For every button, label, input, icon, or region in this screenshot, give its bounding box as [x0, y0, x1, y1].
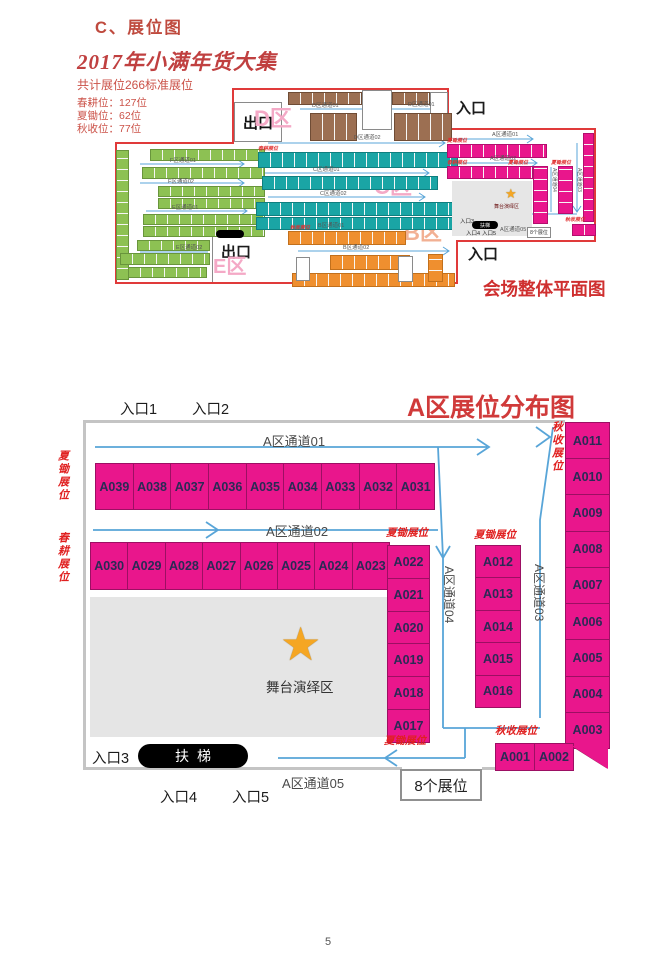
escalator-pill-e-zone [216, 230, 244, 238]
entrance4-label: 入口4 [160, 786, 197, 807]
booth-A023: A023 [352, 543, 389, 589]
booth-A015: A015 [476, 642, 520, 674]
hall-outline [447, 128, 596, 130]
channel-label-d2: D区通道02 [354, 136, 381, 142]
booth-A022: A022 [388, 546, 429, 578]
elevator-box [362, 90, 392, 130]
booth-A011: A011 [566, 423, 609, 458]
booth-A030: A030 [91, 543, 127, 589]
booth-A033: A033 [321, 464, 359, 509]
booth-A006: A006 [566, 603, 609, 639]
stat-autumn: 秋收位：77位 [77, 121, 141, 136]
booth-strip-pink [572, 224, 596, 236]
bottom-wall [84, 767, 402, 770]
mini-season-label: 夏锄展位 [551, 161, 571, 166]
hall-outline [232, 88, 449, 90]
season-label-summer-bottom: 夏锄展位 [384, 736, 426, 747]
booth-A008: A008 [566, 531, 609, 567]
mini-entrance3-label: 入口3 [460, 220, 474, 226]
booth-strip-teal [256, 217, 458, 230]
entrance-bottom-label: 入口 [468, 243, 498, 264]
booth-A039: A039 [96, 464, 133, 509]
booth-strip-pink [533, 166, 548, 224]
booth-row-top: A039A038A037A036A035A034A033A032A031 [95, 463, 435, 510]
channel03-label: A区通道03 [531, 564, 548, 621]
booth-A035: A035 [246, 464, 284, 509]
channel-label-mini-a3: A区通道03 [576, 168, 581, 192]
channel-label-mini-a1: A区通道01 [492, 133, 518, 139]
zone-a-map-title: A区展位分布图 [407, 388, 575, 424]
star-icon: ★ [280, 621, 321, 667]
booth-strip-pink [447, 166, 533, 179]
booth-strip-green [142, 167, 265, 179]
booth-row-second: A030A029A028A027A026A025A024A023 [90, 542, 390, 590]
top-wall [84, 420, 565, 423]
eight-booths-label: 8个展位 [414, 775, 467, 796]
booth-A037: A037 [170, 464, 208, 509]
stage-area [90, 597, 387, 737]
booth-strip-teal [262, 176, 438, 190]
mini-eight-booths-label: 8个展位 [530, 229, 548, 236]
booth-A021: A021 [388, 578, 429, 611]
booth-A014: A014 [476, 610, 520, 642]
booth-A038: A038 [133, 464, 171, 509]
stage-label: 舞台演绎区 [266, 676, 334, 696]
booth-strip-green [158, 186, 265, 197]
booth-A019: A019 [388, 643, 429, 676]
booth-strip-green [143, 226, 265, 237]
booth-strip-teal [256, 202, 458, 216]
mini-stage-label: 舞台演绎区 [494, 203, 519, 210]
entrance-top-label: 入口 [456, 97, 486, 118]
channel-label-e1: E区通道01 [172, 206, 198, 212]
booth-A002: A002 [534, 744, 573, 770]
channel-label-mini-a4: A区通道04 [551, 168, 556, 192]
hall-outline [456, 240, 596, 242]
mini-season-label: 春耕展位 [447, 161, 467, 166]
booth-strip-pink [583, 133, 594, 222]
zone-d-watermark: D区 [254, 108, 292, 130]
channel-label-e2: E区通道02 [176, 246, 202, 252]
booth-A027: A027 [202, 543, 239, 589]
booth-A005: A005 [566, 639, 609, 675]
booth-strip-green [120, 253, 210, 265]
channel-label-mini-a5: A区通道05 [500, 228, 526, 234]
booth-A025: A025 [277, 543, 314, 589]
channel05-label: A区通道05 [282, 773, 344, 792]
mini-season-label: 秋收展位 [565, 218, 585, 223]
channel-label-c2: C区通道02 [320, 192, 347, 198]
booth-strip-green [128, 267, 207, 278]
booth-col-left: A022A021A020A019A018A017 [387, 545, 430, 743]
zone-e-watermark: E区 [213, 257, 246, 277]
overview-caption: 会场整体平面图 [483, 276, 606, 301]
channel-label-b2: B区通道02 [343, 246, 369, 252]
channel-label-d1b: D区通道01 [408, 103, 435, 109]
mini-entrance4-label: 入口4 [466, 232, 480, 238]
booth-A004: A004 [566, 676, 609, 712]
entrance1-label: 入口1 [120, 398, 157, 419]
booth-A036: A036 [208, 464, 246, 509]
booth-A012: A012 [476, 546, 520, 577]
booth-strip-brown [394, 113, 452, 141]
mini-eight-booths-box: 8个展位 [527, 227, 551, 238]
left-wall [83, 420, 86, 770]
booth-A026: A026 [240, 543, 277, 589]
document-page: C、展位图 2017年小满年货大集 共计展位266标准展位 春耕位：127位 夏… [0, 0, 656, 975]
booth-strip-pink [558, 166, 573, 214]
stair-box [296, 257, 310, 281]
escalator-pill: 扶梯 [138, 744, 248, 768]
season-label-summer-left: 夏锄展位 [56, 450, 68, 502]
booth-strip-orange [288, 231, 406, 245]
mini-season-label: 夏锄展位 [447, 139, 467, 144]
booth-strip-teal [258, 152, 458, 168]
mini-entrance5-label: 入口5 [482, 232, 496, 238]
booth-A020: A020 [388, 611, 429, 644]
season-label-autumn-bottom: 秋收展位 [495, 726, 537, 737]
booth-strip-brown [310, 113, 357, 141]
channel-label-b1: B区通道01 [318, 224, 344, 230]
booth-A010: A010 [566, 458, 609, 494]
season-label-summer-mid2: 夏锄展位 [474, 530, 516, 541]
booth-A009: A009 [566, 494, 609, 530]
channel01-label: A区通道01 [263, 431, 325, 450]
section-heading: C、展位图 [95, 14, 183, 38]
booth-A029: A029 [127, 543, 164, 589]
hall-outline [115, 142, 234, 144]
hall-outline [456, 240, 458, 284]
fair-title: 2017年小满年货大集 [77, 46, 277, 76]
mini-season-label: 春耕展位 [258, 147, 278, 152]
stair-box [398, 256, 413, 282]
booth-A007: A007 [566, 567, 609, 603]
channel-label-c1: C区通道01 [313, 168, 340, 174]
booth-A028: A028 [165, 543, 202, 589]
channel-label-f1: F区通道01 [170, 159, 196, 165]
booth-A013: A013 [476, 577, 520, 609]
booth-A018: A018 [388, 676, 429, 709]
booth-col-right: A011A010A009A008A007A006A005A004A003 [565, 422, 610, 749]
page-number: 5 [325, 936, 331, 948]
mini-season-label: 秋收展位 [290, 226, 310, 231]
booth-col-mid: A012A013A014A015A016 [475, 545, 521, 708]
season-label-spring-left: 春耕展位 [56, 532, 68, 584]
booth-A001: A001 [496, 744, 534, 770]
booth-A034: A034 [283, 464, 321, 509]
booth-strip-green [143, 214, 265, 225]
entrance3-label: 入口3 [92, 747, 129, 768]
booth-A032: A032 [359, 464, 397, 509]
booth-strip-green [150, 149, 265, 161]
channel02-label: A区通道02 [266, 521, 328, 540]
booth-total: 共计展位266标准展位 [77, 76, 193, 93]
season-label-autumn-right: 秋收展位 [550, 421, 562, 473]
booth-a003-corner [572, 746, 608, 769]
mini-escalator-pill: 扶梯 [472, 221, 498, 229]
booth-row-bottom: A001A002 [495, 743, 574, 771]
channel-label-f2: F区通道02 [168, 180, 194, 186]
entrance2-label: 入口2 [192, 398, 229, 419]
entrance5-label: 入口5 [232, 786, 269, 807]
booth-A024: A024 [314, 543, 351, 589]
booth-A031: A031 [396, 464, 434, 509]
channel04-label: A区通道04 [441, 566, 458, 623]
booth-strip-orange [428, 254, 443, 282]
channel-label-d1: D区通道01 [312, 104, 339, 110]
eight-booths-box: 8个展位 [400, 769, 482, 801]
mini-season-label: 夏锄展位 [508, 161, 528, 166]
mini-star-icon: ★ [505, 186, 517, 202]
booth-A016: A016 [476, 675, 520, 707]
season-label-summer-mid1: 夏锄展位 [386, 528, 428, 539]
